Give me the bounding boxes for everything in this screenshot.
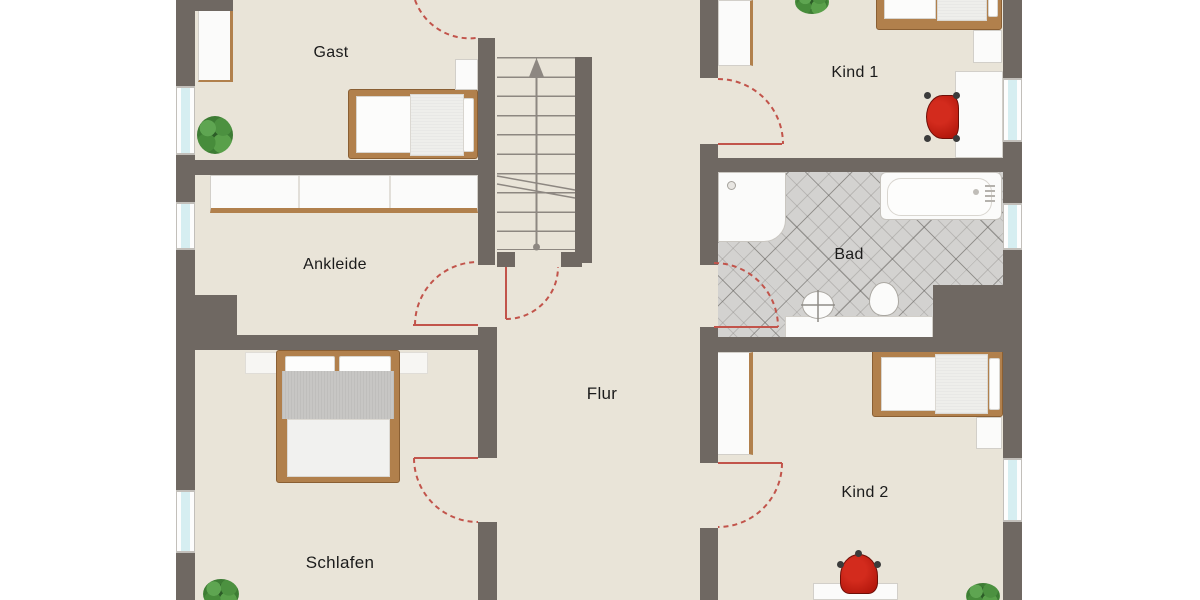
wall	[700, 0, 718, 78]
toilet	[869, 282, 899, 316]
room-label-schlafen: Schlafen	[306, 553, 375, 573]
washbasin	[802, 291, 834, 319]
room-label-flur: Flur	[587, 384, 617, 404]
shower	[718, 172, 786, 242]
wall	[176, 250, 195, 490]
wall-block	[933, 285, 1003, 340]
wardrobe-kind2	[717, 352, 753, 455]
wall	[176, 160, 478, 175]
wall-pillar	[176, 295, 237, 335]
double-bed-schlafen	[276, 350, 400, 483]
sideboard-ankleide	[210, 175, 478, 213]
stair-post	[497, 252, 515, 267]
window	[1003, 458, 1022, 522]
wall	[176, 0, 233, 11]
wall	[176, 553, 195, 600]
single-bed-kind2	[872, 349, 1003, 417]
room-label-bad: Bad	[834, 246, 863, 264]
desk-kind1	[955, 71, 1003, 158]
wall	[1003, 522, 1022, 600]
wall	[478, 327, 497, 458]
wall	[700, 528, 718, 600]
wall	[478, 522, 497, 600]
window	[176, 490, 195, 553]
stair-wall-west	[478, 38, 495, 265]
room-label-kind1: Kind 1	[831, 64, 878, 82]
staircase	[497, 57, 575, 250]
window	[176, 86, 195, 155]
wall	[176, 335, 497, 350]
desk-chair-kind1	[926, 95, 959, 139]
window	[1003, 78, 1022, 142]
wall	[1003, 0, 1022, 78]
floor-plan: Gast Ankleide Schlafen Flur Bad Kind 1 K…	[0, 0, 1200, 600]
vanity-counter	[785, 316, 933, 338]
wall	[700, 158, 1003, 172]
window	[1003, 203, 1022, 250]
wall	[1003, 142, 1022, 203]
nightstand-kind2	[976, 417, 1002, 449]
wall	[176, 0, 195, 86]
wardrobe-kind1	[718, 0, 753, 66]
wardrobe-gast	[198, 10, 233, 82]
stair-post	[561, 252, 582, 267]
single-bed-gast	[348, 89, 478, 159]
window	[176, 202, 195, 250]
potted-plant-icon	[197, 116, 233, 154]
stair-wall-east	[575, 57, 592, 263]
single-bed-kind1	[876, 0, 1002, 30]
bathtub	[880, 172, 1002, 220]
room-label-kind2: Kind 2	[841, 484, 888, 502]
room-label-gast: Gast	[314, 44, 349, 62]
nightstand-gast	[455, 59, 478, 90]
desk-chair-kind2	[840, 554, 878, 594]
wall	[1003, 250, 1022, 458]
nightstand-kind1	[973, 30, 1002, 63]
room-label-ankleide: Ankleide	[303, 256, 367, 274]
